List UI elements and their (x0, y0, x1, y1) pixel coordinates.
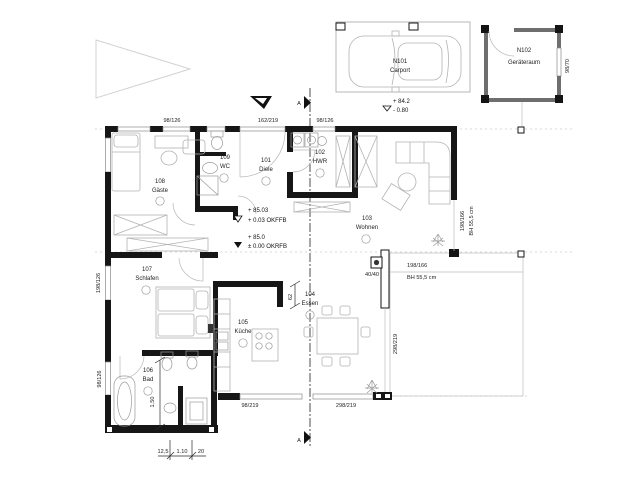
section-label-bottom: A (297, 438, 301, 444)
svg-text:108: 108 (155, 179, 166, 185)
dim-top-window-1: 98/126 (163, 118, 180, 124)
dim-wohnen-side-sill: BH 55,5 cm (469, 206, 475, 236)
carport-area: N101 Carport + 84.2 - 0.80 (336, 22, 470, 114)
carport-level: + 84.2 (393, 99, 411, 105)
dim-chain-3: 20 (198, 449, 204, 455)
carport-depth: - 0.80 (393, 108, 409, 114)
room-label-kueche: 105 Küche (234, 320, 252, 347)
floor-finish-symbol (220, 174, 228, 182)
svg-text:109: 109 (220, 155, 231, 161)
hwr-appliances (291, 133, 327, 147)
dim-terrace-window: 198/166 (407, 263, 427, 269)
svg-text:102: 102 (315, 150, 326, 156)
floor-finish-symbol (144, 387, 152, 395)
floor-finish-symbol (316, 169, 324, 177)
dim-top-window-2: 98/126 (316, 118, 333, 124)
svg-text:105: 105 (238, 320, 249, 326)
elevation-notes: + 85.03 + 0.03 OKFFB + 85.0 ± 0.00 OKRFB (234, 208, 287, 250)
level-marker-open-icon (383, 106, 391, 111)
section-arrow-bottom-icon (304, 431, 311, 444)
svg-text:Gäste: Gäste (152, 188, 169, 194)
svg-text:103: 103 (362, 216, 373, 222)
svg-text:Essen: Essen (302, 301, 319, 307)
dim-top-door: 162/219 (258, 118, 278, 124)
shed-area: N102 Geräteraum 98/70 (481, 25, 571, 103)
north-arrow-icon (96, 40, 190, 98)
living-shelves (294, 136, 377, 212)
svg-text:Küche: Küche (234, 329, 252, 335)
armchair (382, 184, 410, 211)
carport-number: N101 (393, 59, 408, 65)
shed-number: N102 (517, 48, 532, 54)
guest-wardrobe (114, 215, 208, 251)
dim-shed-window: 98/70 (565, 59, 571, 73)
section-label-top: A (297, 101, 301, 107)
room-label-schlafen: 107 Schlafen (135, 267, 158, 294)
floor-plan-page: N101 Carport + 84.2 - 0.80 N102 Gerätera… (0, 0, 640, 480)
rfb-note: ± 0.00 OKRFB (248, 244, 287, 250)
svg-text:Wohnen: Wohnen (356, 225, 378, 231)
svg-text:Bad: Bad (143, 377, 154, 383)
dim-wohnen-side-window: 198/166 (460, 211, 466, 231)
guest-bed (112, 133, 140, 191)
dim-left-window-1: 198/126 (96, 273, 102, 293)
floor-finish-symbol (362, 235, 370, 243)
ffb-level: + 85.03 (248, 208, 269, 214)
svg-text:104: 104 (305, 292, 316, 298)
coffee-table (398, 173, 416, 191)
ffb-note: + 0.03 OKFFB (248, 218, 287, 224)
furniture (112, 131, 450, 426)
room-label-hwr: 102 HWR (313, 150, 328, 177)
dim-essen-window: 298/219 (393, 334, 399, 354)
svg-text:Schlafen: Schlafen (135, 276, 158, 282)
shed-name: Geräteraum (508, 60, 540, 66)
room-label-bad: 106 Bad (143, 368, 154, 395)
rfb-level: + 85.0 (248, 235, 266, 241)
svg-text:Diele: Diele (259, 167, 273, 173)
plant-dining (365, 380, 379, 393)
dim-terrace-sill: BH 55,5 cm (407, 275, 437, 281)
bath-fixtures (114, 351, 207, 426)
dim-bottom-window-2: 298/219 (336, 403, 356, 409)
floor-finish-symbol (262, 177, 270, 185)
svg-text:106: 106 (143, 368, 154, 374)
rfb-marker-icon (234, 242, 242, 248)
dim-column: 40/40 (365, 272, 379, 278)
floor-plan-drawing: N101 Carport + 84.2 - 0.80 N102 Gerätera… (0, 0, 640, 480)
room-label-gaeste: 108 Gäste (152, 179, 169, 205)
dim-left-window-2: 98/126 (97, 370, 103, 387)
dim-kitchen-pass: 62 (288, 294, 294, 300)
room-label-diele: 101 Diele (259, 158, 273, 185)
svg-text:101: 101 (261, 158, 272, 164)
room-label-wohnen: 103 Wohnen (356, 216, 378, 243)
dim-chain-1: 12,5 (158, 449, 169, 455)
room-label-wc: 109 WC (220, 155, 231, 182)
dim-bath-clear: 1.50 (150, 397, 156, 408)
svg-text:HWR: HWR (313, 159, 328, 165)
kitchen-island (252, 329, 278, 361)
dim-chain-2: 1.10 (177, 449, 188, 455)
dim-bottom-window-1: 98/219 (241, 403, 258, 409)
floor-finish-symbol (156, 197, 164, 205)
svg-text:107: 107 (142, 267, 153, 273)
double-bed (156, 287, 210, 338)
carport-name: Carport (390, 68, 410, 74)
wc-fixtures (197, 131, 223, 195)
entrance-arrow-icon (250, 96, 272, 109)
plant-living (431, 234, 445, 246)
floor-finish-symbol (142, 286, 150, 294)
dimension-labels: 98/126 162/219 98/126 198/126 98/126 198… (96, 118, 475, 460)
floor-finish-symbol (239, 339, 247, 347)
sofa (396, 142, 450, 204)
svg-text:WC: WC (220, 164, 231, 170)
